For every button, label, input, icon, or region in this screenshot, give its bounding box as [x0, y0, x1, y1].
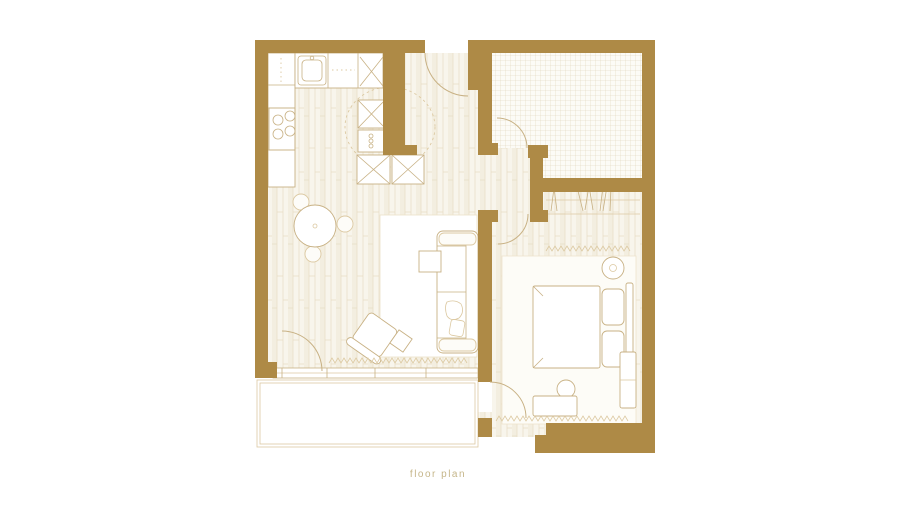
left-wall	[255, 40, 268, 378]
pillow-icon	[602, 289, 624, 325]
top-wall-left	[255, 40, 425, 53]
terrace-floor	[257, 380, 478, 447]
right-wall	[642, 40, 655, 423]
bedroom-door-strike-stub	[530, 210, 548, 222]
bottom-right-wall	[535, 423, 655, 453]
dining-chair-icon	[305, 246, 321, 262]
top-wall-right	[468, 40, 655, 53]
terrace-inner-border	[260, 383, 475, 444]
bedroom-door-jamb	[478, 210, 498, 222]
living-window-band	[273, 368, 478, 378]
caption: floor plan	[0, 469, 888, 480]
bathroom-door-jamb	[478, 143, 498, 155]
kitchen-appliance-column	[358, 100, 385, 152]
floor-plan-svg	[0, 0, 900, 506]
bedroom-terrace-door-stub	[478, 418, 492, 437]
stool-icon	[557, 380, 575, 398]
coffee-table-icon	[419, 251, 441, 272]
dresser-icon	[620, 352, 636, 408]
kitchen-top-counter	[295, 53, 383, 88]
dining-chair-icon	[337, 216, 353, 232]
bathroom-left-wall	[478, 53, 492, 143]
vestibule-wardrobe-wall	[530, 155, 543, 210]
kitchen-left-counter	[268, 53, 295, 187]
floor-plan-image: floor plan	[0, 0, 900, 506]
sofa-icon	[437, 231, 478, 353]
oven-icon	[358, 130, 385, 152]
bedside-table-icon	[602, 257, 624, 279]
dining-table-top	[294, 205, 336, 247]
living-bedroom-wall	[478, 222, 492, 382]
left-wall-foot	[268, 362, 277, 378]
bathroom-bottom-wall	[543, 178, 643, 192]
